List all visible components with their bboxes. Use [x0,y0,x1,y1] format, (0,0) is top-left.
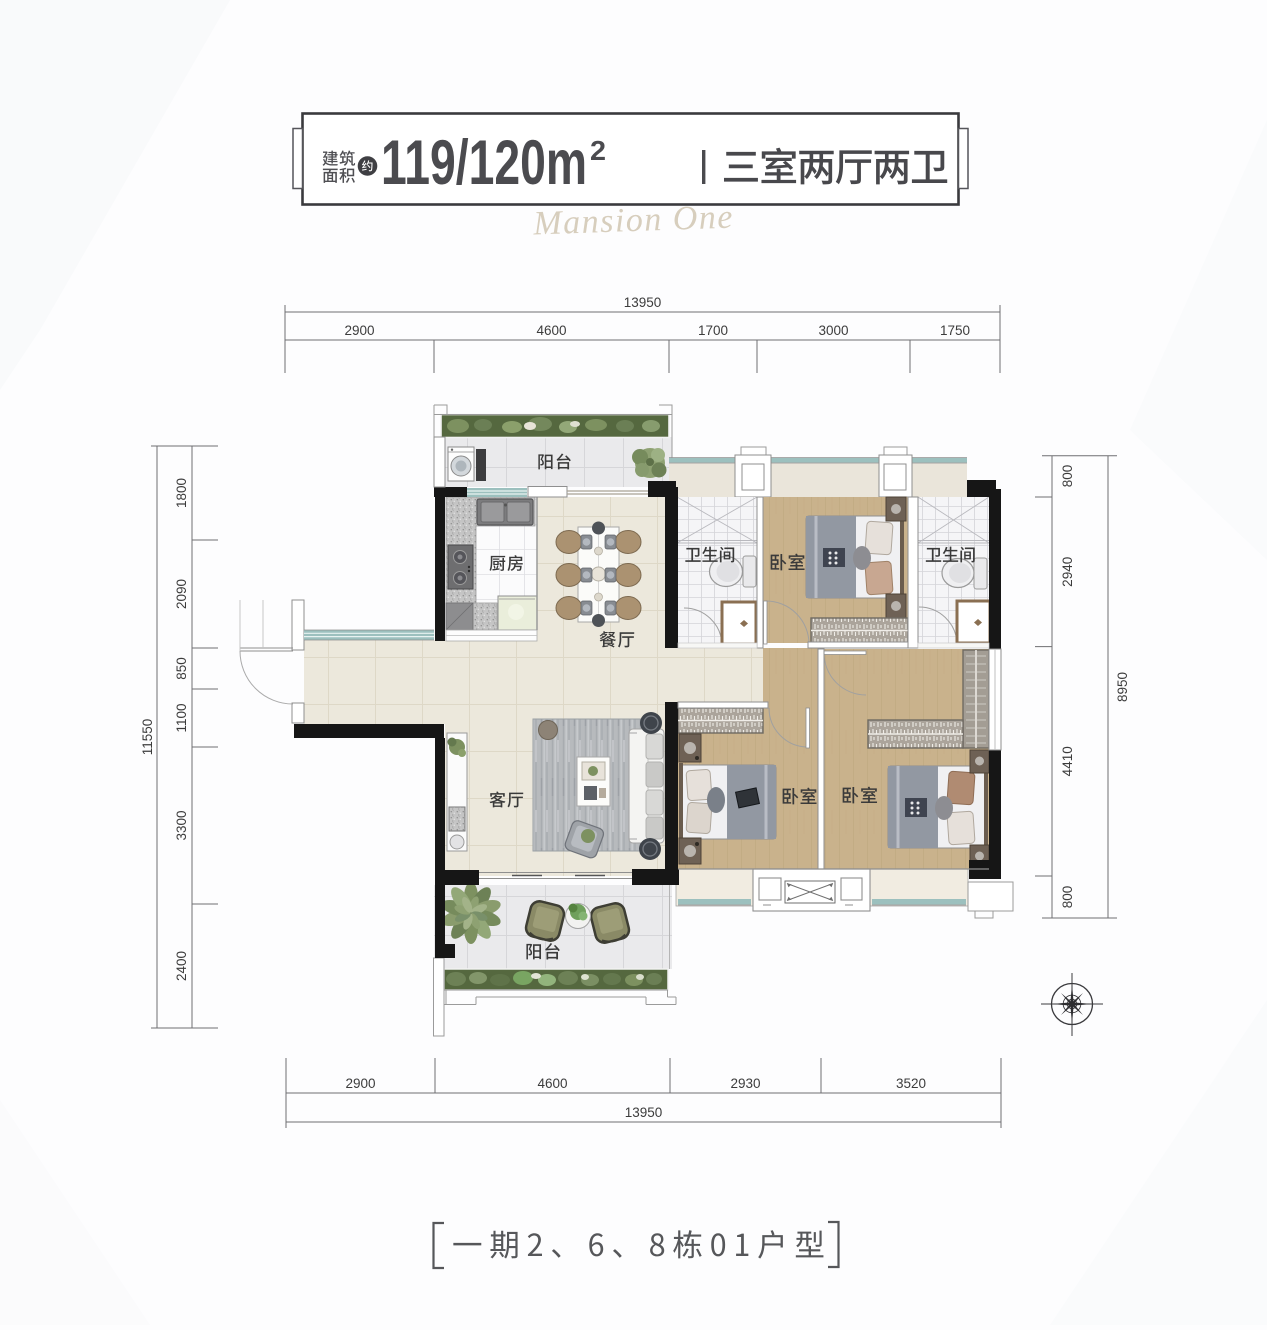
svg-text:2090: 2090 [174,579,189,609]
svg-text:800: 800 [1060,886,1075,909]
svg-text:2: 2 [590,135,606,166]
svg-text:2400: 2400 [174,951,189,981]
svg-text:11550: 11550 [140,719,155,756]
svg-text:Mansion One: Mansion One [532,199,735,243]
svg-text:850: 850 [174,657,189,680]
svg-text:8950: 8950 [1115,672,1130,702]
svg-text:2900: 2900 [344,323,374,338]
svg-text:4410: 4410 [1060,746,1075,776]
svg-text:1800: 1800 [174,478,189,508]
svg-text:2940: 2940 [1060,557,1075,587]
svg-text:1100: 1100 [174,703,189,732]
svg-text:2900: 2900 [345,1076,375,1091]
svg-text:4600: 4600 [536,323,566,338]
svg-text:4600: 4600 [537,1076,567,1091]
svg-text:3300: 3300 [174,810,189,840]
svg-text:1700: 1700 [698,323,728,338]
svg-text:13950: 13950 [624,295,662,310]
svg-text:1750: 1750 [940,323,970,338]
svg-text:3000: 3000 [818,323,848,338]
svg-text:2930: 2930 [730,1076,760,1091]
svg-text:119/120m: 119/120m [381,128,587,198]
svg-text:800: 800 [1060,465,1075,488]
svg-text:3520: 3520 [896,1076,926,1091]
svg-text:13950: 13950 [625,1105,663,1120]
